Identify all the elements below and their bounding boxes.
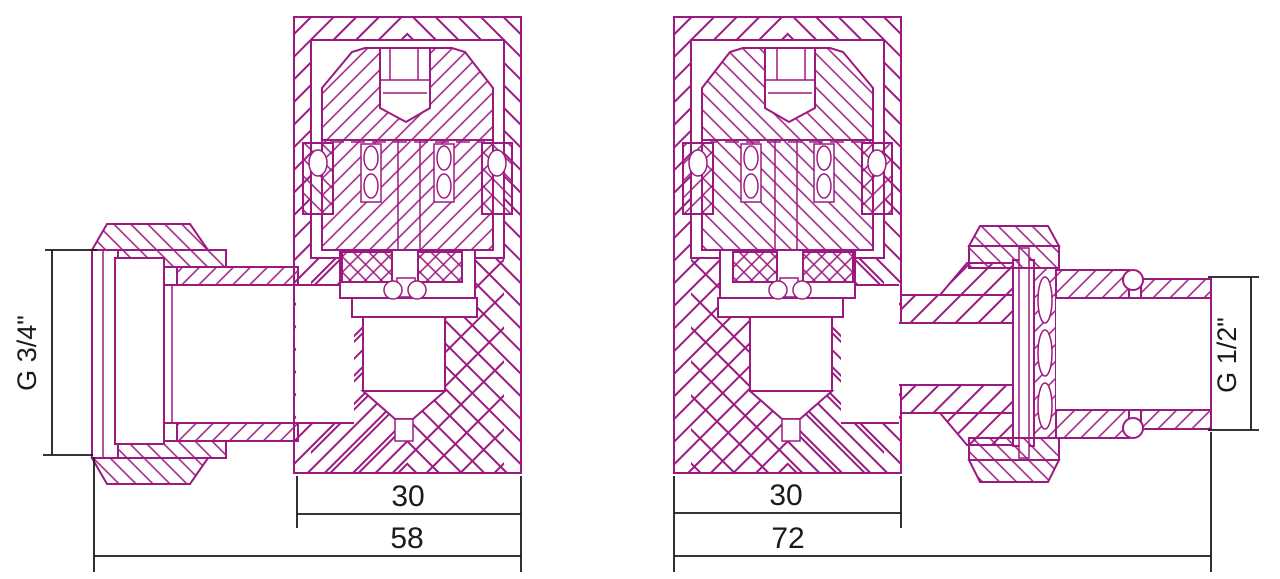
valve-cross-section-drawing: G 3/4" 30 58 bbox=[0, 0, 1280, 579]
thread-size-label-left: G 3/4" bbox=[12, 315, 42, 391]
right-valve: G 1/2" 30 72 bbox=[674, 17, 1259, 572]
o-ring-icon bbox=[1123, 418, 1143, 438]
dim-label-left-body-width: 30 bbox=[391, 480, 424, 513]
left-union-nut bbox=[92, 224, 298, 484]
dim-label-right-total-width: 72 bbox=[771, 522, 804, 555]
dim-label-left-total-width: 58 bbox=[390, 522, 423, 555]
right-union-nut bbox=[899, 226, 1211, 482]
o-ring-icon bbox=[1123, 270, 1143, 290]
technical-drawing-page: G 3/4" 30 58 bbox=[0, 0, 1280, 579]
dim-label-right-body-width: 30 bbox=[769, 479, 802, 512]
left-valve: G 3/4" 30 58 bbox=[12, 17, 521, 572]
thread-size-label-right: G 1/2" bbox=[1212, 317, 1242, 393]
